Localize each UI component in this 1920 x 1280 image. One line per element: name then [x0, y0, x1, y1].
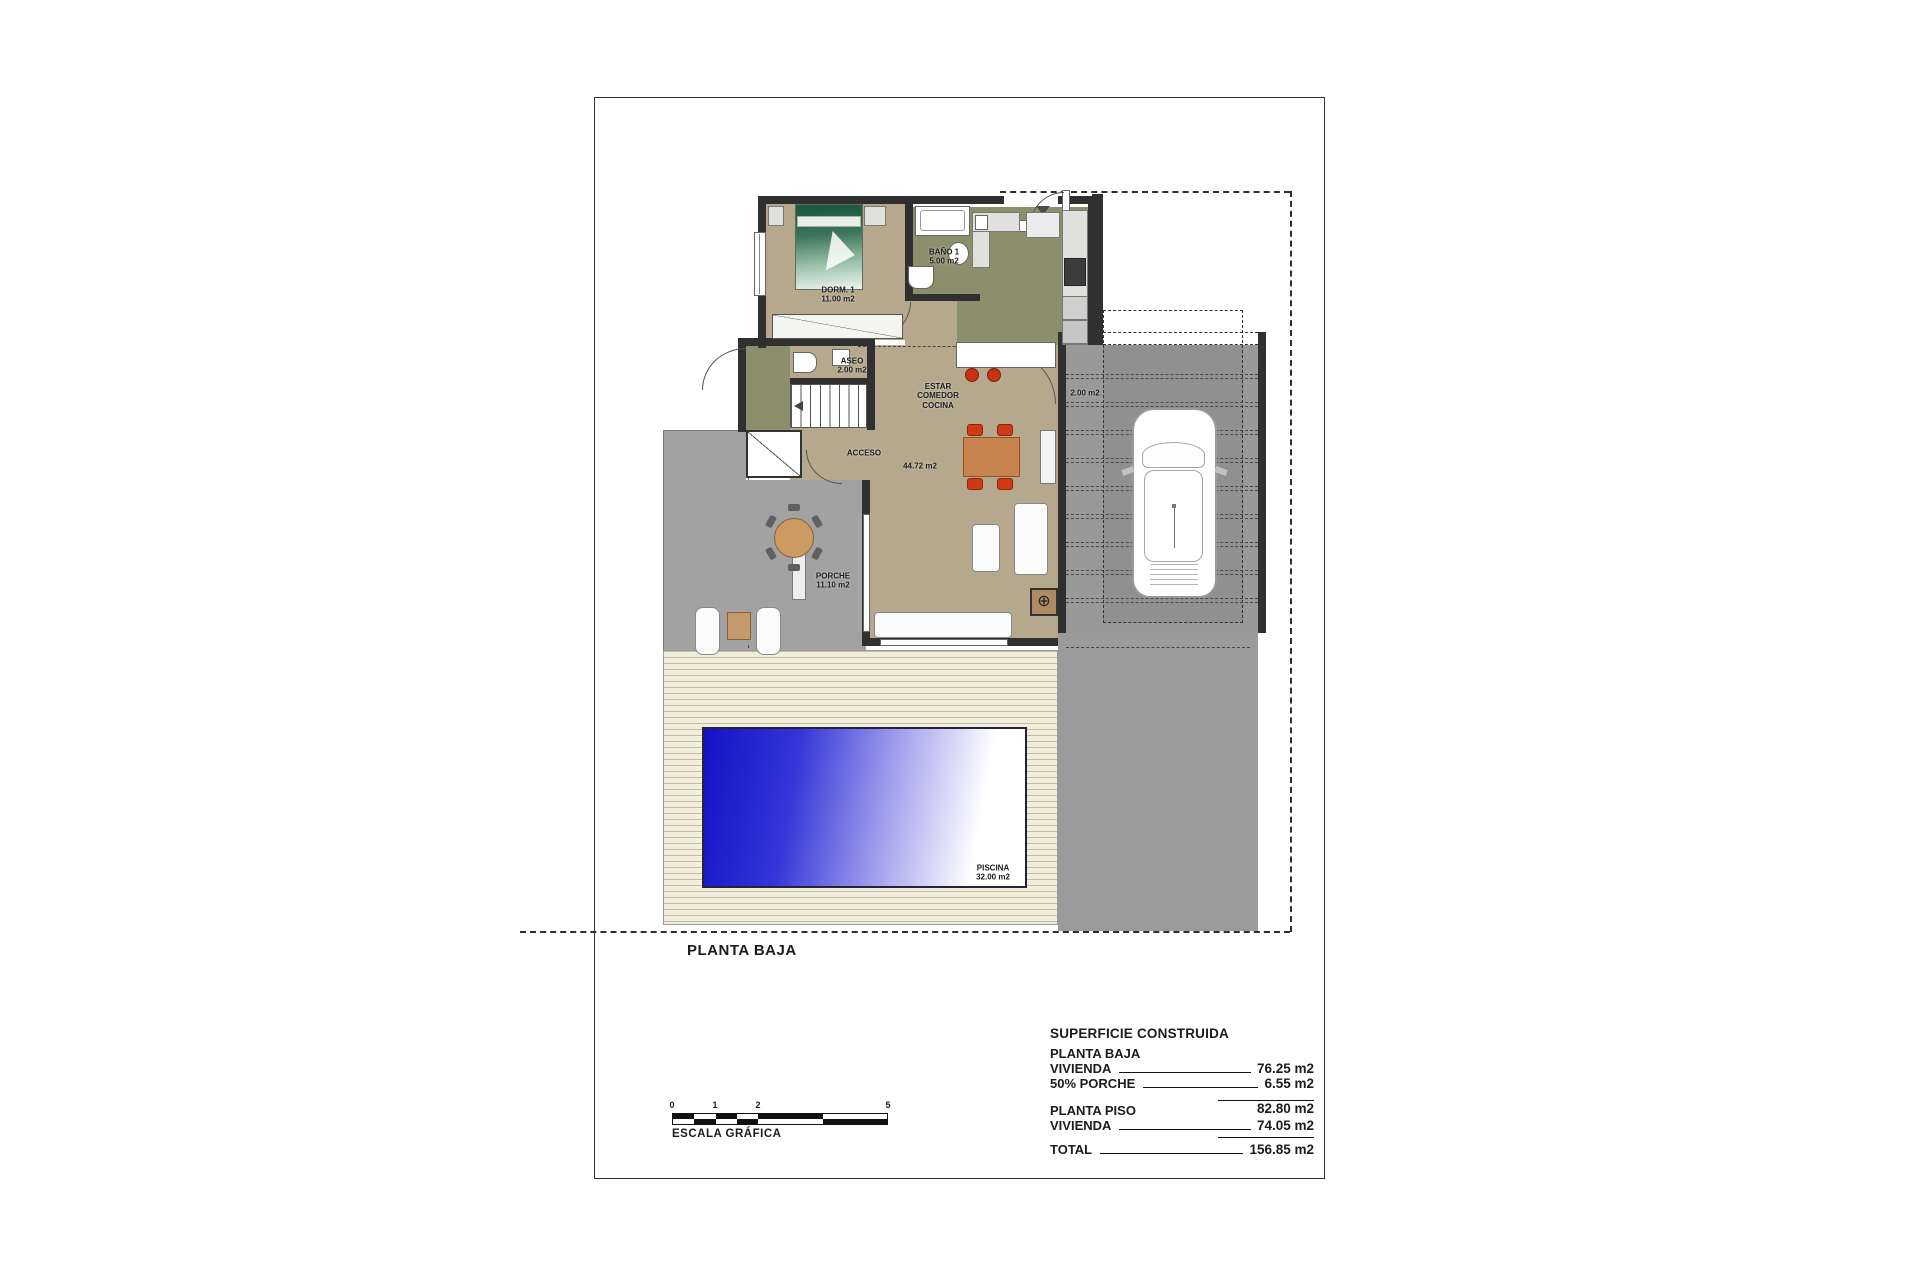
sofa-bottom	[874, 612, 1012, 638]
leader-line	[1143, 1087, 1258, 1088]
leader-line	[1100, 1153, 1243, 1154]
label-living-area: 44.72 m2	[903, 461, 937, 470]
table-row-total: TOTAL 156.85 m2	[1050, 1142, 1314, 1157]
bath-toilet	[908, 266, 934, 289]
label-dorm: DORM. 111.00 m2	[821, 286, 854, 305]
table-header: SUPERFICIE CONSTRUIDA	[1050, 1026, 1314, 1041]
scale-bar	[672, 1113, 888, 1125]
label-aseo: ASEO2.00 m2	[837, 357, 866, 376]
dining-chair	[997, 424, 1013, 436]
plan-title: PLANTA BAJA	[687, 942, 797, 959]
car-center-line	[1174, 508, 1175, 548]
section-title-planta-piso: PLANTA PISO	[1050, 1103, 1136, 1118]
label-lateral-area: 2.00 m2	[1070, 388, 1099, 397]
table-row-subtotal: PLANTA PISO 82.80 m2	[1050, 1101, 1314, 1118]
dining-chair	[997, 478, 1013, 490]
scale-tick-0: 0	[669, 1100, 674, 1110]
dining-chair	[967, 478, 983, 490]
row-value: 6.55 m2	[1264, 1076, 1314, 1091]
living-window	[880, 639, 1008, 646]
kitchen-fridge	[1026, 212, 1060, 238]
driveway-area	[1058, 633, 1258, 931]
nightstand	[768, 206, 784, 226]
total-value: 156.85 m2	[1249, 1142, 1314, 1157]
plot-boundary-bottom	[520, 931, 1290, 933]
car-top-view	[1132, 408, 1217, 598]
row-value: 76.25 m2	[1257, 1061, 1314, 1076]
scale-tick-1: 1	[712, 1100, 717, 1110]
bed-pillow-band	[797, 216, 861, 227]
leader-line	[1119, 1072, 1251, 1073]
entry-vestibule	[746, 430, 802, 478]
scale-label: ESCALA GRÁFICA	[672, 1128, 781, 1140]
fireplace: ⊕	[1030, 588, 1058, 616]
sofa	[1014, 503, 1048, 575]
porch-chair	[788, 504, 800, 511]
bathtub-inner	[920, 210, 965, 231]
section-title-planta-baja: PLANTA BAJA	[1050, 1046, 1314, 1061]
wall	[1088, 196, 1103, 345]
car-windshield	[1142, 442, 1205, 468]
bedroom-window-line	[759, 234, 760, 294]
scale-tick-2: 2	[755, 1100, 760, 1110]
leader-line	[1119, 1129, 1251, 1130]
label-piscina: PISCINA32.00 m2	[976, 864, 1010, 883]
porch-chair	[788, 564, 800, 571]
floorplan-document: ⊕ DORM. 111.00 m2 BAÑO 15.00 m2 ASEO2.00…	[0, 0, 1920, 1280]
kitchen-cabinet	[1062, 320, 1088, 344]
bar-stool	[965, 368, 979, 382]
aseo-toilet	[793, 352, 817, 373]
dining-chair	[967, 424, 983, 436]
wall	[905, 294, 980, 301]
dining-table	[963, 437, 1020, 477]
surface-area-table: SUPERFICIE CONSTRUIDA PLANTA BAJA VIVIEN…	[1050, 1026, 1314, 1157]
plot-boundary-top	[1000, 191, 1290, 193]
porch-slider-window	[863, 514, 870, 632]
label-estar: ESTARCOMEDORCOCINA	[917, 382, 959, 410]
wardrobe	[772, 314, 903, 339]
label-porche: PORCHE11.10 m2	[816, 572, 850, 591]
kitchen-cabinet	[1062, 296, 1088, 320]
driveway-dashed-line	[1066, 647, 1250, 648]
table-row: 50% PORCHE 6.55 m2	[1050, 1076, 1314, 1091]
row-label: VIVIENDA	[1050, 1061, 1111, 1076]
corridor-floor	[905, 300, 960, 345]
wall	[1258, 332, 1266, 633]
total-rule	[1218, 1137, 1314, 1138]
lounger-side-table	[727, 612, 751, 640]
total-label: TOTAL	[1050, 1142, 1092, 1157]
wall	[790, 378, 867, 384]
kitchen-sink	[975, 215, 988, 230]
plot-boundary-right	[1290, 191, 1292, 932]
stairs-direction-arrow	[794, 401, 803, 411]
label-bano: BAÑO 15.00 m2	[929, 248, 959, 267]
row-value: 74.05 m2	[1257, 1118, 1314, 1133]
sideboard	[1040, 430, 1056, 484]
hall-floor	[746, 345, 790, 430]
wall	[867, 345, 875, 430]
table-row: VIVIENDA 76.25 m2	[1050, 1061, 1314, 1076]
porch-round-table	[774, 518, 814, 558]
sun-lounger	[756, 607, 781, 655]
armchair	[972, 524, 1000, 572]
bedroom-window	[754, 232, 766, 296]
wall	[758, 196, 1004, 204]
label-acceso: ACCESO	[847, 448, 881, 457]
subtotal-value: 82.80 m2	[1257, 1101, 1314, 1116]
sun-lounger	[695, 607, 720, 655]
kitchen-stove	[1064, 258, 1086, 286]
nightstand	[864, 206, 886, 226]
wall	[1058, 345, 1066, 633]
row-label: 50% PORCHE	[1050, 1076, 1135, 1091]
bar-stool	[987, 368, 1001, 382]
car-rear-vents	[1150, 564, 1198, 588]
graphic-scale: 0 1 2 5 ESCALA GRÁFICA	[672, 1100, 888, 1148]
kitchen-bar-counter	[956, 342, 1056, 368]
row-label: VIVIENDA	[1050, 1118, 1111, 1133]
table-row: VIVIENDA 74.05 m2	[1050, 1118, 1314, 1133]
wall	[738, 338, 875, 346]
scale-tick-5: 5	[885, 1100, 890, 1110]
